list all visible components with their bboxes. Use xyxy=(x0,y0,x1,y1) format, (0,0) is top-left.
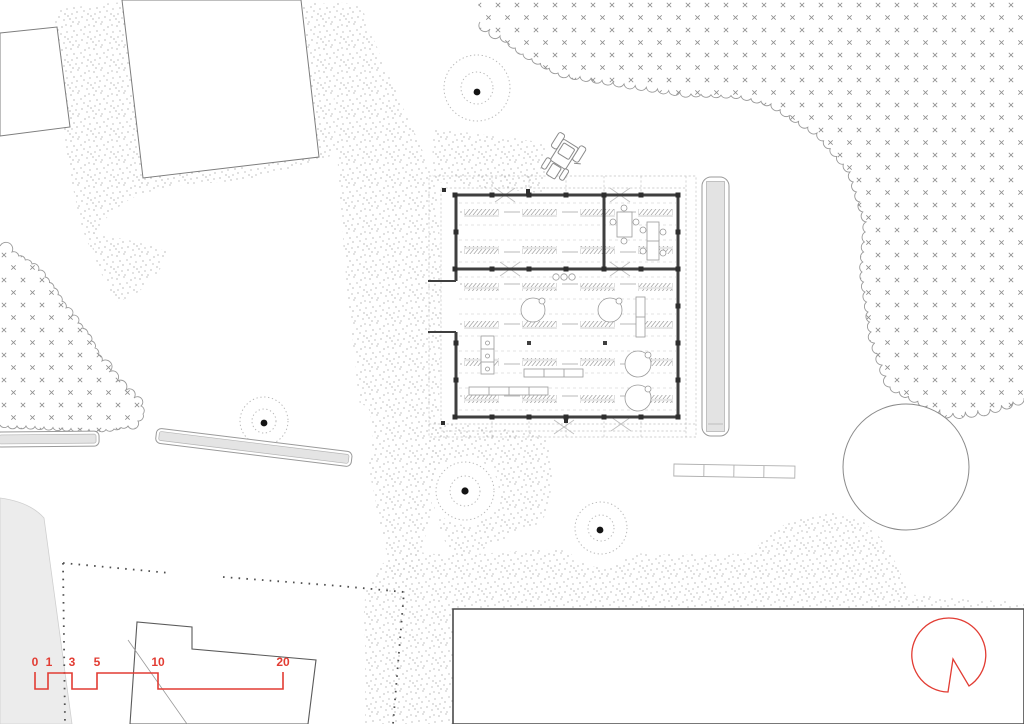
scale-label: 3 xyxy=(69,655,76,669)
segmented-bench xyxy=(674,464,795,478)
wall-bench-left xyxy=(0,431,99,447)
scale-label: 5 xyxy=(94,655,101,669)
entry-tick xyxy=(526,189,530,196)
building-top-left-large xyxy=(122,0,319,178)
site-plan-canvas: 0 1 3 5 10 20 xyxy=(0,0,1024,724)
scale-label: 10 xyxy=(151,655,165,669)
entry-tick xyxy=(564,415,568,423)
wall-bench-vertical xyxy=(702,177,729,436)
scale-label: 20 xyxy=(276,655,290,669)
survey-mark xyxy=(441,421,445,425)
floor-marker xyxy=(527,341,531,345)
floor-marker xyxy=(603,341,607,345)
scale-label: 1 xyxy=(46,655,53,669)
building-top-left-small xyxy=(0,27,70,136)
large-tree-circle xyxy=(843,404,969,530)
scale-label: 0 xyxy=(32,655,39,669)
survey-mark xyxy=(442,188,446,192)
north-arrow-icon xyxy=(912,618,986,692)
